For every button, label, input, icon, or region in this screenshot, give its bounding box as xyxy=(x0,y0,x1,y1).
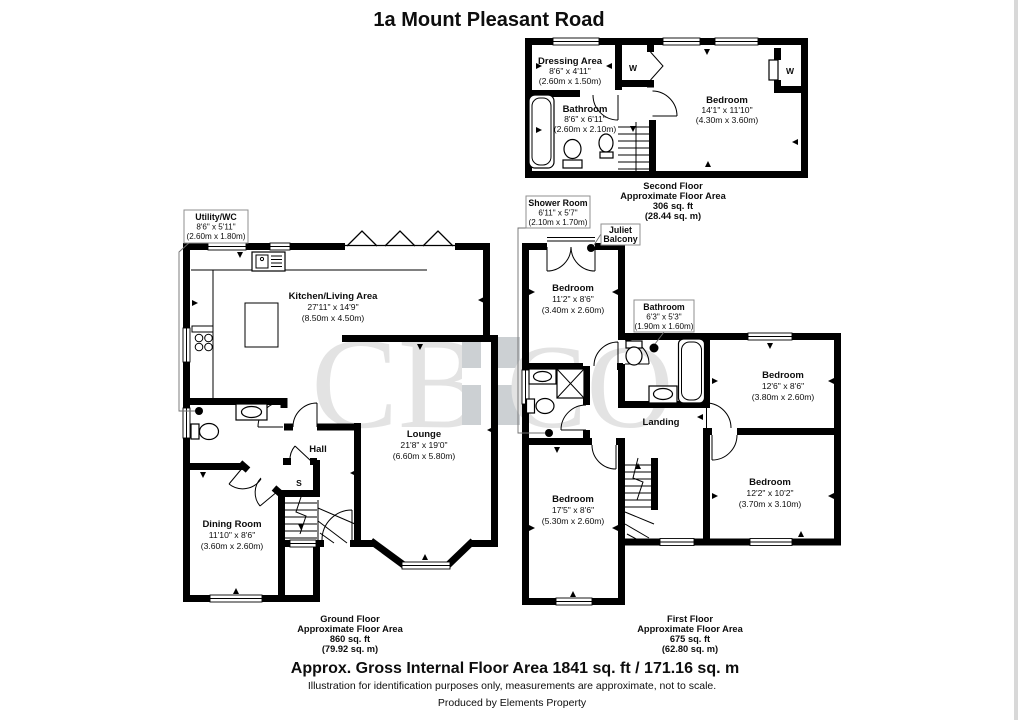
svg-text:8'6" x 5'11": 8'6" x 5'11" xyxy=(196,223,235,232)
callout-dot xyxy=(587,244,595,252)
wardrobe-door xyxy=(769,60,778,80)
svg-text:(4.30m x 3.60m): (4.30m x 3.60m) xyxy=(696,115,759,125)
svg-text:(79.92 sq. m): (79.92 sq. m) xyxy=(322,644,378,654)
svg-text:(2.60m x 1.80m): (2.60m x 1.80m) xyxy=(187,232,246,241)
svg-text:6'3" x 5'3": 6'3" x 5'3" xyxy=(646,313,682,322)
page-edge xyxy=(1014,0,1018,720)
bath-icon xyxy=(679,339,705,403)
room-label-bedroom-mid: Bedroom xyxy=(762,370,804,381)
svg-text:First Floor: First Floor xyxy=(667,614,713,624)
svg-text:860 sq. ft: 860 sq. ft xyxy=(330,634,370,644)
first-floor-area-label: First Floor Approximate Floor Area 675 s… xyxy=(637,614,743,654)
svg-text:6'11" x 5'7": 6'11" x 5'7" xyxy=(538,209,577,218)
bifold-door-icon xyxy=(651,52,664,80)
label-wardrobe-right: W xyxy=(786,66,795,76)
ground-floor-area-label: Ground Floor Approximate Floor Area 860 … xyxy=(297,614,403,654)
svg-text:(1.90m x 1.60m): (1.90m x 1.60m) xyxy=(635,322,694,331)
room-label-bedroom-rear: Bedroom xyxy=(749,477,791,488)
svg-text:17'5" x 8'6": 17'5" x 8'6" xyxy=(552,505,594,515)
page-title: 1a Mount Pleasant Road xyxy=(373,9,604,31)
credit-text: Produced by Elements Property xyxy=(438,697,587,709)
room-label-utility: Utility/WC xyxy=(195,212,237,222)
svg-text:(3.40m x 2.60m): (3.40m x 2.60m) xyxy=(542,305,605,315)
svg-text:Ground Floor: Ground Floor xyxy=(320,614,380,624)
svg-text:8'6" x 4'11": 8'6" x 4'11" xyxy=(549,66,591,76)
svg-text:Approximate Floor Area: Approximate Floor Area xyxy=(297,624,403,634)
svg-text:(6.60m x 5.80m): (6.60m x 5.80m) xyxy=(393,451,456,461)
second-floor-area-label: Second Floor Approximate Floor Area 306 … xyxy=(620,181,726,221)
svg-text:(2.10m x 1.70m): (2.10m x 1.70m) xyxy=(529,218,588,227)
floorplan-page: CB CO 1a Mount Pleasant Road xyxy=(0,0,1020,720)
callout-dot xyxy=(195,407,203,415)
svg-text:675 sq. ft: 675 sq. ft xyxy=(670,634,710,644)
svg-text:(2.60m x 2.10m): (2.60m x 2.10m) xyxy=(554,124,617,134)
bath-icon xyxy=(529,95,554,168)
stair-arrow xyxy=(630,126,636,132)
svg-text:(28.44 sq. m): (28.44 sq. m) xyxy=(645,211,701,221)
room-label-shower: Shower Room xyxy=(528,198,587,208)
svg-text:12'6" x 8'6": 12'6" x 8'6" xyxy=(762,381,804,391)
svg-text:(3.80m x 2.60m): (3.80m x 2.60m) xyxy=(752,392,815,402)
toilet-icon xyxy=(191,424,199,439)
svg-text:(2.60m x 1.50m): (2.60m x 1.50m) xyxy=(539,76,602,86)
wc-fixtures xyxy=(191,404,267,440)
room-label-bathroom1: Bathroom xyxy=(643,302,685,312)
room-label-bedroom-left: Bedroom xyxy=(552,494,594,505)
room-label-dining: Dining Room xyxy=(202,519,261,530)
floorplan-canvas: CB CO 1a Mount Pleasant Road xyxy=(0,0,1020,720)
gross-area-text: Approx. Gross Internal Floor Area 1841 s… xyxy=(291,660,739,677)
room-label-hall: Hall xyxy=(309,444,326,455)
second-floor-plan: Dressing Area 8'6" x 4'11" (2.60m x 1.50… xyxy=(525,38,808,221)
svg-text:306 sq. ft: 306 sq. ft xyxy=(653,201,693,211)
room-label-lounge: Lounge xyxy=(407,429,441,440)
disclaimer-text: Illustration for identification purposes… xyxy=(308,680,716,692)
juliet-balcony-doors xyxy=(547,238,595,272)
hob-icon xyxy=(195,334,212,351)
label-wardrobe-left: W xyxy=(629,63,638,73)
svg-text:Balcony: Balcony xyxy=(603,234,637,244)
svg-text:(3.70m x 3.10m): (3.70m x 3.10m) xyxy=(739,499,802,509)
extractor-icon xyxy=(192,326,213,332)
svg-text:(5.30m x 2.60m): (5.30m x 2.60m) xyxy=(542,516,605,526)
svg-text:8'6" x 6'11": 8'6" x 6'11" xyxy=(564,114,606,124)
svg-text:21'8" x 19'0": 21'8" x 19'0" xyxy=(400,440,447,450)
svg-text:Second Floor: Second Floor xyxy=(643,181,703,191)
island-unit xyxy=(245,303,278,347)
room-label-bedroom-front: Bedroom xyxy=(552,283,594,294)
svg-text:Approximate Floor Area: Approximate Floor Area xyxy=(637,624,743,634)
watermark-left-text: CB xyxy=(311,312,484,456)
room-label-landing: Landing xyxy=(643,417,680,428)
svg-text:14'1" x 11'10": 14'1" x 11'10" xyxy=(701,105,752,115)
callout-dot xyxy=(650,344,659,353)
svg-text:11'2" x 8'6": 11'2" x 8'6" xyxy=(552,294,594,304)
callout-dot xyxy=(545,429,553,437)
svg-text:Approximate Floor Area: Approximate Floor Area xyxy=(620,191,726,201)
svg-text:11'10" x 8'6": 11'10" x 8'6" xyxy=(209,530,256,540)
svg-text:27'11" x 14'9": 27'11" x 14'9" xyxy=(307,302,358,312)
toilet-icon xyxy=(527,399,535,413)
svg-text:12'2" x 10'2": 12'2" x 10'2" xyxy=(746,488,793,498)
sink-icon xyxy=(599,134,613,152)
bifold-door-icon xyxy=(345,231,458,246)
svg-text:(3.60m x 2.60m): (3.60m x 2.60m) xyxy=(201,541,264,551)
room-label-kitchen: Kitchen/Living Area xyxy=(289,291,379,302)
footer: Approx. Gross Internal Floor Area 1841 s… xyxy=(291,660,739,709)
room-label-store: S xyxy=(296,478,302,488)
toilet-icon xyxy=(563,160,582,168)
svg-text:(62.80 sq. m): (62.80 sq. m) xyxy=(662,644,718,654)
staircase xyxy=(285,497,355,543)
staircase xyxy=(625,458,654,542)
stair-arrow xyxy=(298,524,304,530)
svg-text:(8.50m x 4.50m): (8.50m x 4.50m) xyxy=(302,313,365,323)
